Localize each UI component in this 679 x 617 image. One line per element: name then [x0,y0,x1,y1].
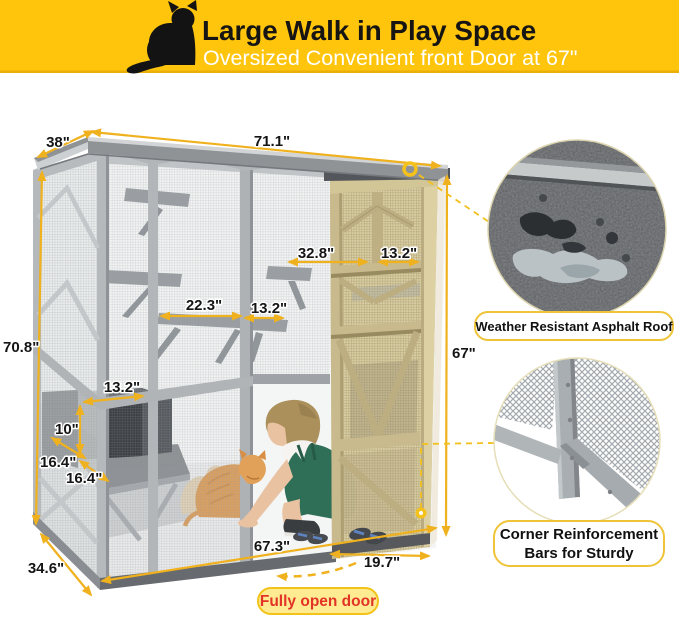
svg-text:16.4": 16.4" [40,454,76,471]
svg-text:Large Walk in Play Space: Large Walk in Play Space [202,15,536,46]
svg-text:Oversized Convenient front Doo: Oversized Convenient front Door at 67" [203,46,578,70]
svg-text:13.2": 13.2" [251,300,287,317]
svg-text:Weather Resistant Asphalt Roof: Weather Resistant Asphalt Roof [475,319,673,334]
svg-text:67.3": 67.3" [254,538,290,555]
svg-text:Bars for Sturdy: Bars for Sturdy [524,545,634,562]
svg-text:67": 67" [452,345,476,362]
svg-text:34.6": 34.6" [28,560,64,577]
svg-text:10": 10" [55,421,79,438]
svg-text:Corner Reinforcement: Corner Reinforcement [500,526,658,543]
svg-text:Fully open door: Fully open door [260,593,376,610]
svg-text:71.1": 71.1" [254,133,290,150]
svg-text:13.2": 13.2" [104,379,140,396]
svg-text:38": 38" [46,134,70,151]
svg-text:22.3": 22.3" [186,297,222,314]
svg-text:19.7": 19.7" [364,554,400,571]
svg-text:16.4": 16.4" [66,470,102,487]
svg-text:70.8": 70.8" [3,339,39,356]
svg-text:13.2": 13.2" [381,245,417,262]
svg-text:32.8": 32.8" [298,245,334,262]
